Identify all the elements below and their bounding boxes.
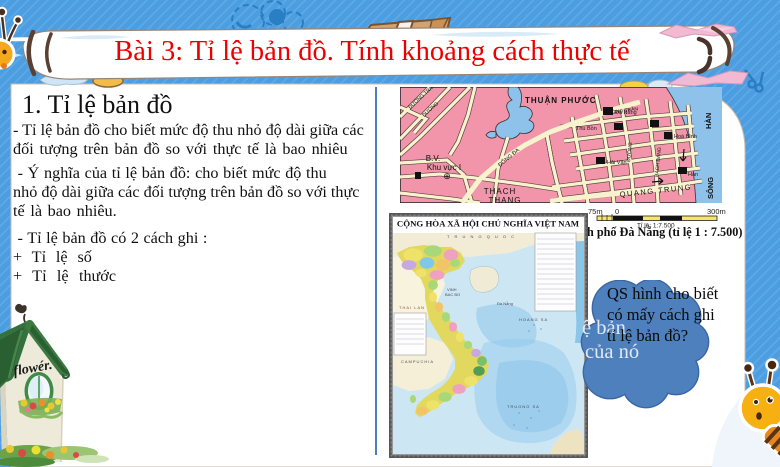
- svg-text:Đà Nẵng: Đà Nẵng: [497, 301, 513, 306]
- svg-text:THAI LAN: THAI LAN: [399, 305, 425, 310]
- svg-text:HÀN: HÀN: [704, 113, 713, 129]
- svg-text:⊕: ⊕: [443, 171, 451, 181]
- svg-text:Thu Bồn: Thu Bồn: [576, 126, 597, 132]
- svg-text:T R U N G Q U O C: T R U N G Q U O C: [447, 234, 516, 239]
- svg-text:THACH: THACH: [484, 187, 517, 196]
- svg-text:Đà Nẵng: Đà Nẵng: [615, 109, 637, 116]
- svg-text:CAMPUCHIA: CAMPUCHIA: [401, 359, 434, 364]
- svg-text:Hải Vân: Hải Vân: [607, 160, 627, 166]
- svg-text:BAC BO: BAC BO: [445, 292, 460, 297]
- svg-text:300m: 300m: [707, 207, 726, 216]
- svg-text:0: 0: [615, 207, 619, 216]
- svg-text:CỘNG HÒA XÃ HỘI CHỦ NGHĨA VIỆT: CỘNG HÒA XÃ HỘI CHỦ NGHĨA VIỆT NAM: [397, 219, 580, 229]
- svg-text:75m: 75m: [588, 207, 603, 216]
- svg-text:Hoà Bình: Hoà Bình: [674, 134, 697, 140]
- svg-text:THANG: THANG: [489, 196, 522, 203]
- svg-text:TRUONG SA: TRUONG SA: [507, 404, 540, 409]
- svg-text:THUẬN PHƯỚC: THUẬN PHƯỚC: [525, 96, 597, 105]
- svg-text:HOANG SA: HOANG SA: [519, 317, 548, 322]
- svg-text:Hàn: Hàn: [688, 172, 698, 178]
- svg-text:B.V.: B.V.: [426, 154, 440, 163]
- svg-text:SÔNG: SÔNG: [706, 177, 715, 199]
